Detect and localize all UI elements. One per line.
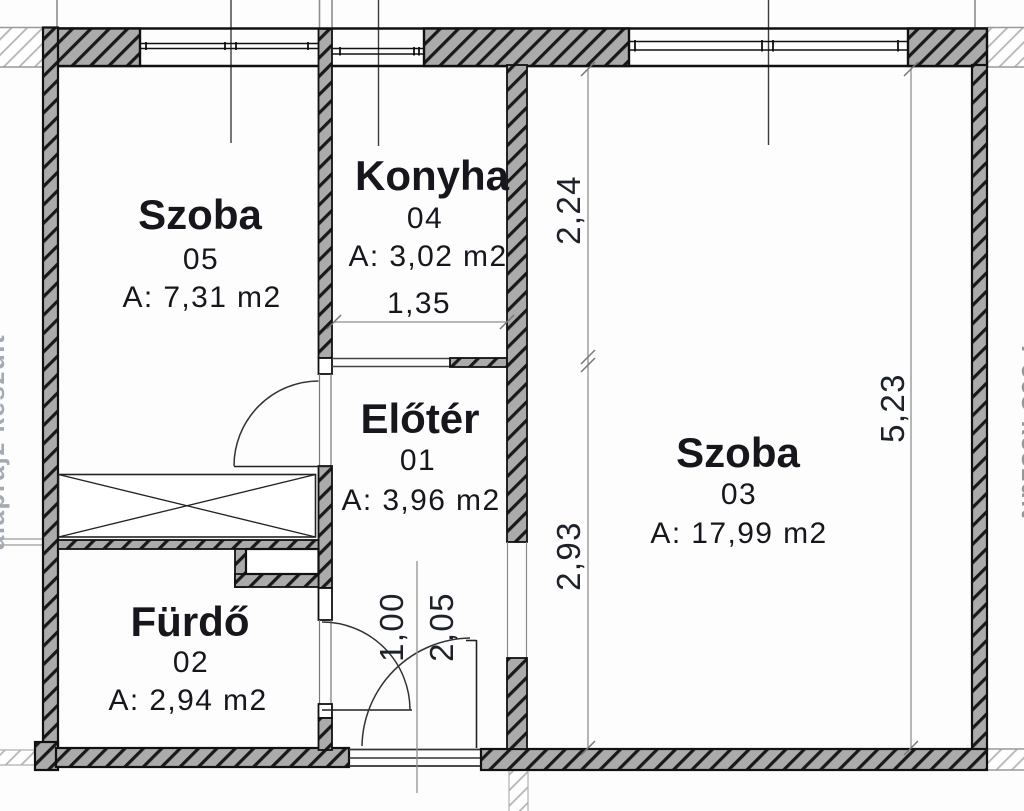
svg-text:1,00: 1,00: [373, 592, 410, 662]
svg-text:02: 02: [173, 646, 209, 679]
svg-text:A: 3,02 m2: A: 3,02 m2: [348, 240, 507, 273]
svg-text:2,05: 2,05: [423, 592, 460, 662]
svg-text:03: 03: [721, 478, 757, 511]
svg-text:A: 7,31 m2: A: 7,31 m2: [122, 281, 281, 314]
svg-text:Fürdő: Fürdő: [131, 598, 250, 645]
svg-text:01: 01: [400, 444, 436, 477]
svg-text:2,93: 2,93: [550, 521, 587, 591]
svg-text:Konyha: Konyha: [355, 152, 510, 199]
svg-text:A: 3,96 m2: A: 3,96 m2: [341, 484, 500, 517]
svg-text:alaprajz készült: alaprajz készült: [0, 334, 10, 550]
svg-text:5,23: 5,23: [874, 373, 911, 443]
svg-text:2,24: 2,24: [550, 175, 587, 245]
svg-text:Előtér: Előtér: [360, 395, 479, 442]
svg-text:Szoba: Szoba: [138, 191, 262, 238]
svg-text:05: 05: [183, 243, 219, 276]
svg-text:Szoba: Szoba: [676, 429, 800, 476]
svg-text:A: 2,94 m2: A: 2,94 m2: [108, 684, 267, 717]
svg-text:04: 04: [407, 202, 443, 235]
svg-text:A: 17,99 m2: A: 17,99 m2: [650, 517, 827, 550]
svg-text:1,35: 1,35: [387, 287, 451, 320]
svg-text:Pécs készült: Pécs készült: [1016, 345, 1024, 519]
